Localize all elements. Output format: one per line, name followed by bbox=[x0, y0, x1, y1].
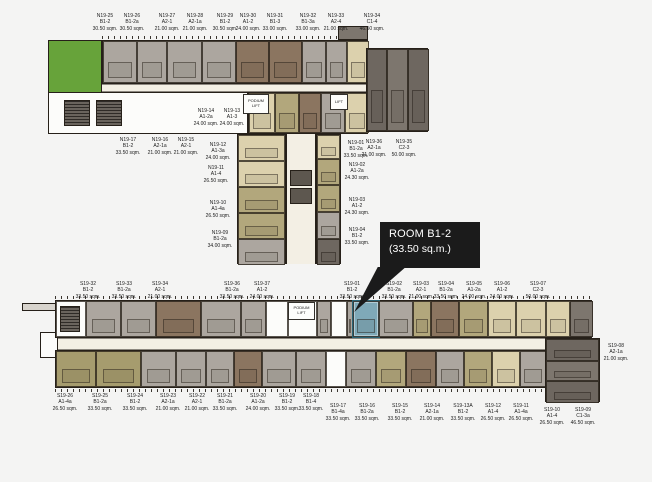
unit-gray bbox=[86, 301, 121, 337]
unit-gray bbox=[238, 239, 285, 265]
north-podium-lift-box: PODIUM LIFT bbox=[243, 94, 269, 114]
unit-gray bbox=[379, 301, 413, 337]
unit-gray bbox=[201, 301, 241, 337]
callout-room-area: (33.50 sq.m.) bbox=[389, 243, 471, 255]
label-N19-01: N19-01B1-2a33.50 sqm. bbox=[337, 140, 375, 159]
label-S19-22: S19-22A2-121.00 sqm. bbox=[178, 393, 216, 412]
north-lobby-mat-2 bbox=[96, 100, 122, 126]
unit-brown bbox=[156, 301, 201, 337]
south-corner-units bbox=[545, 338, 600, 402]
unit-white bbox=[331, 301, 347, 337]
unit-tan bbox=[459, 301, 488, 337]
floor-plan-canvas: PODIUM LIFT LIFT N19-25B1-230.50 sqm.N19… bbox=[0, 0, 652, 482]
label-N19-32: N19-32B1-3a33.00 sqm. bbox=[289, 13, 327, 32]
unit-gray bbox=[520, 351, 546, 387]
unit-tan bbox=[275, 93, 299, 133]
unit-dark bbox=[546, 381, 599, 403]
unit-dark bbox=[367, 49, 387, 131]
label-S19-10: S19-10A1-426.50 sqm. bbox=[533, 407, 571, 426]
north-lobby-mat-1 bbox=[64, 100, 90, 126]
label-S19-19: S19-19B1-233.50 sqm. bbox=[268, 393, 306, 412]
south-corridor bbox=[58, 338, 592, 350]
unit-dark2 bbox=[387, 49, 408, 131]
north-arm-top-units bbox=[102, 40, 368, 84]
unit-brown bbox=[431, 301, 459, 337]
unit-gray bbox=[103, 41, 137, 83]
unit-gray bbox=[326, 41, 347, 83]
south-top-row-units bbox=[55, 300, 592, 338]
unit-gray bbox=[346, 351, 376, 387]
unit-gray bbox=[302, 41, 326, 83]
south-lobby-mat bbox=[60, 306, 80, 332]
label-N19-29: N19-29B1-230.50 sqm. bbox=[206, 13, 244, 32]
unit-gray bbox=[436, 351, 464, 387]
north-roof-block bbox=[338, 26, 368, 40]
unit-beige bbox=[317, 135, 340, 159]
lift-core-1 bbox=[290, 170, 312, 186]
label-S19-16: S19-16B1-2a33.50 sqm. bbox=[348, 403, 386, 422]
unit-gray bbox=[262, 351, 296, 387]
north-stem-right-units bbox=[316, 134, 341, 264]
label-S19-25: S19-25B1-2a33.50 sqm. bbox=[81, 393, 119, 412]
label-S19-26: S19-26A1-4a26.50 sqm. bbox=[46, 393, 84, 412]
unit-khaki bbox=[56, 351, 96, 387]
unit-tan bbox=[238, 213, 285, 239]
unit-tan bbox=[464, 351, 492, 387]
label-N19-25: N19-25B1-230.50 sqm. bbox=[86, 13, 124, 32]
label-S19-23: S19-23A2-1a21.00 sqm. bbox=[149, 393, 187, 412]
south-top-tick-strip bbox=[55, 296, 592, 299]
north-lift-box: LIFT bbox=[330, 94, 348, 110]
label-S19-20: S19-20A1-2a24.00 sqm. bbox=[239, 393, 277, 412]
label-N19-12: N19-12A1-3a24.00 sqm. bbox=[199, 142, 237, 161]
unit-gray bbox=[167, 41, 202, 83]
label-S19-14: S19-14A2-1a21.00 sqm. bbox=[413, 403, 451, 422]
unit-gray bbox=[317, 301, 331, 337]
unit-beige bbox=[238, 135, 285, 161]
lift-core-2 bbox=[290, 188, 312, 204]
unit-gray bbox=[176, 351, 206, 387]
unit-dark bbox=[546, 339, 599, 361]
label-S19-09: S19-09C1-3a46.50 sqm. bbox=[564, 407, 602, 426]
room-callout: ROOM B1-2 (33.50 sq.m.) bbox=[380, 222, 480, 268]
south-podium-lift-box: PODIUM LIFT bbox=[288, 302, 315, 320]
unit-tan bbox=[413, 301, 431, 337]
unit-gray bbox=[137, 41, 167, 83]
label-S19-18: S19-18B1-433.50 sqm. bbox=[292, 393, 330, 412]
north-arm-corridor bbox=[102, 84, 368, 92]
unit-tan bbox=[376, 351, 406, 387]
label-N19-36: N19-36A2-1a21.00 sqm. bbox=[355, 139, 393, 158]
unit-gray bbox=[121, 301, 156, 337]
unit-gray bbox=[241, 301, 266, 337]
room-S19-01-highlighted[interactable] bbox=[353, 301, 379, 337]
label-N19-26: N19-26B1-2a30.50 sqm. bbox=[113, 13, 151, 32]
label-S19-24: S19-24B1-233.50 sqm. bbox=[116, 393, 154, 412]
label-N19-28: N19-28A2-1a21.00 sqm. bbox=[176, 13, 214, 32]
unit-white bbox=[266, 301, 288, 337]
south-entry-stub bbox=[22, 303, 56, 311]
label-N19-02: N19-02A1-2a24.30 sqm. bbox=[338, 162, 376, 181]
label-S19-13A: S19-13AB1-233.50 sqm. bbox=[444, 403, 482, 422]
label-N19-17: N19-17B1-233.50 sqm. bbox=[109, 137, 147, 156]
label-N19-03: N19-03A1-224.30 sqm. bbox=[338, 197, 376, 216]
label-S19-15: S19-15B1-233.50 sqm. bbox=[381, 403, 419, 422]
callout-room-name: ROOM B1-2 bbox=[389, 228, 471, 240]
unit-dark2 bbox=[570, 301, 593, 337]
unit-brown bbox=[236, 41, 269, 83]
label-N19-31: N19-31B1-333.00 sqm. bbox=[256, 13, 294, 32]
label-S19-17: S19-17B1-4a33.50 sqm. bbox=[319, 403, 357, 422]
unit-beige bbox=[238, 161, 285, 187]
label-N19-09: N19-09B1-2a34.00 sqm. bbox=[201, 230, 239, 249]
label-N19-10: N19-10A1-4a26.50 sqm. bbox=[199, 200, 237, 219]
label-S19-08: S19-08A2-1a21.00 sqm. bbox=[597, 343, 635, 362]
unit-gray bbox=[206, 351, 234, 387]
label-N19-16: N19-16A2-1a21.00 sqm. bbox=[141, 137, 179, 156]
unit-dark bbox=[408, 49, 429, 131]
unit-gray bbox=[296, 351, 326, 387]
unit-gray bbox=[317, 212, 340, 239]
label-N19-27: N19-27A2-121.00 sqm. bbox=[148, 13, 186, 32]
unit-beige bbox=[516, 301, 546, 337]
south-bottom-tick-strip bbox=[55, 389, 545, 392]
label-N19-30: N19-30A1-224.00 sqm. bbox=[229, 13, 267, 32]
garden-area bbox=[48, 40, 102, 93]
label-N19-11: N19-11A1-426.50 sqm. bbox=[197, 165, 235, 184]
unit-brown bbox=[299, 93, 321, 133]
unit-dark2 bbox=[546, 361, 599, 381]
unit-dark bbox=[317, 239, 340, 265]
label-N19-15: N19-15A2-121.00 sqm. bbox=[167, 137, 205, 156]
unit-white bbox=[326, 351, 346, 387]
unit-tan bbox=[238, 187, 285, 213]
unit-tan bbox=[317, 185, 340, 212]
label-S19-12: S19-12A1-426.50 sqm. bbox=[474, 403, 512, 422]
unit-tan bbox=[317, 159, 340, 185]
unit-beige bbox=[546, 301, 570, 337]
label-N19-04: N19-04B1-233.50 sqm. bbox=[338, 227, 376, 246]
north-tail-units bbox=[366, 48, 428, 132]
label-S19-21: S19-21B1-2a33.50 sqm. bbox=[206, 393, 244, 412]
unit-brown bbox=[234, 351, 262, 387]
north-tick-strip bbox=[102, 36, 368, 39]
unit-khaki bbox=[96, 351, 141, 387]
south-bottom-row-units bbox=[55, 350, 545, 388]
label-S19-11: S19-11A1-4a26.50 sqm. bbox=[502, 403, 540, 422]
unit-brown bbox=[406, 351, 436, 387]
unit-beige bbox=[488, 301, 516, 337]
unit-beige bbox=[492, 351, 520, 387]
unit-gray bbox=[202, 41, 236, 83]
unit-gray bbox=[141, 351, 176, 387]
label-N19-35: N19-35C2-350.00 sqm. bbox=[385, 139, 423, 158]
unit-brown bbox=[269, 41, 302, 83]
north-stem-left-units bbox=[237, 134, 286, 264]
